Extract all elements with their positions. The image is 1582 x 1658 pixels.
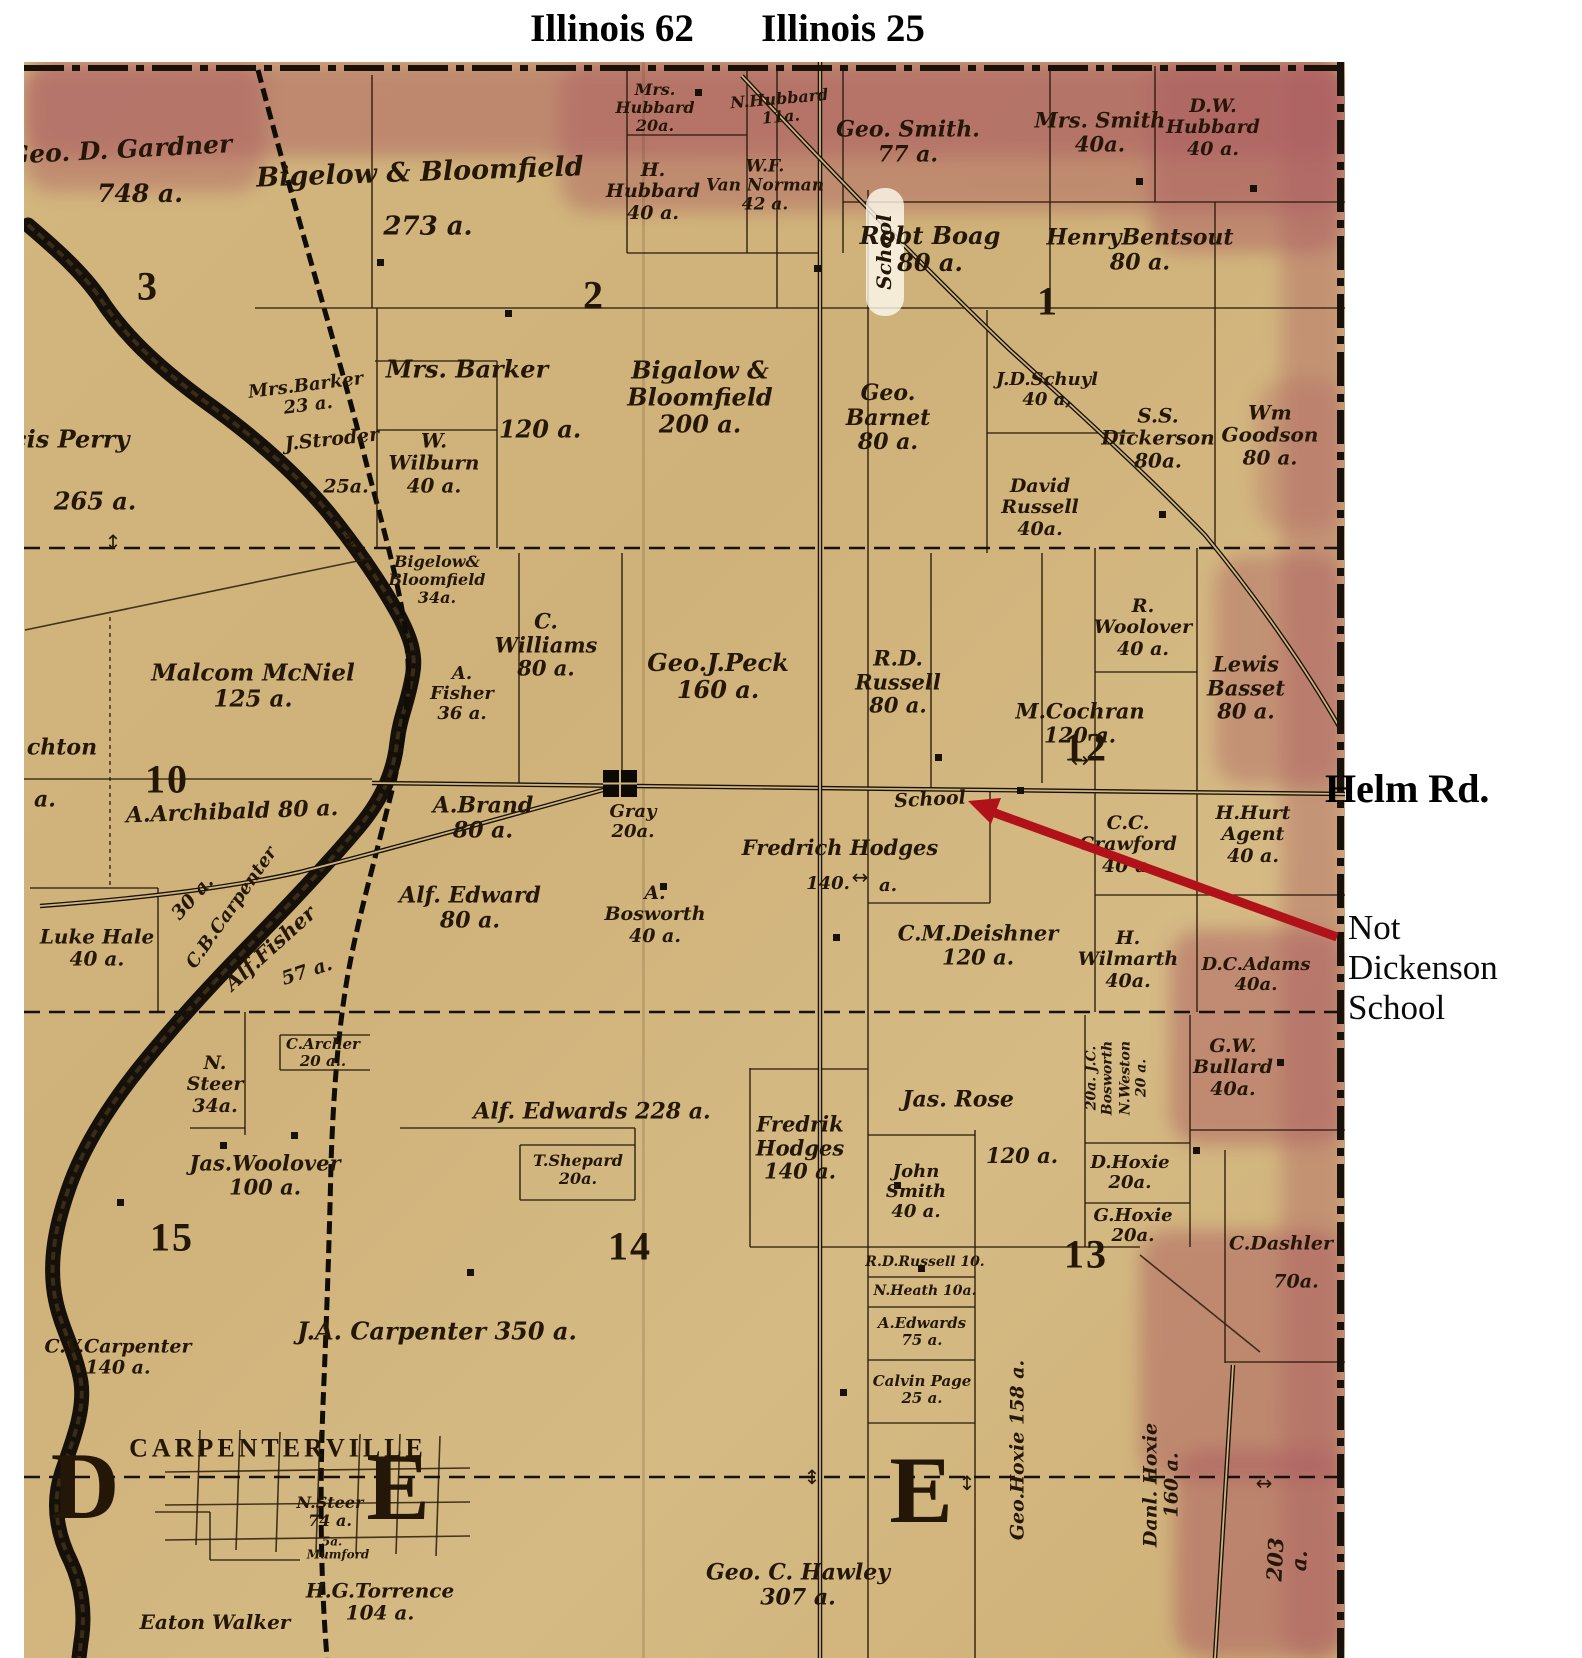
map-border-top bbox=[24, 65, 1345, 71]
map-linework bbox=[24, 62, 1345, 1658]
school-highlight bbox=[866, 188, 904, 316]
route-label-illinois-62: Illinois 62 bbox=[530, 6, 694, 51]
not-dickenson-school-note: Not Dickenson School bbox=[1348, 908, 1498, 1028]
plat-map: Geo. D. Gardner748 a.Bigelow & Bloomfiel… bbox=[24, 62, 1345, 1658]
route-label-illinois-25: Illinois 25 bbox=[761, 6, 925, 51]
map-border-right bbox=[1337, 62, 1344, 1658]
helm-rd-label: Helm Rd. bbox=[1325, 765, 1489, 812]
plat-map-page: Geo. D. Gardner748 a.Bigelow & Bloomfiel… bbox=[0, 0, 1582, 1658]
